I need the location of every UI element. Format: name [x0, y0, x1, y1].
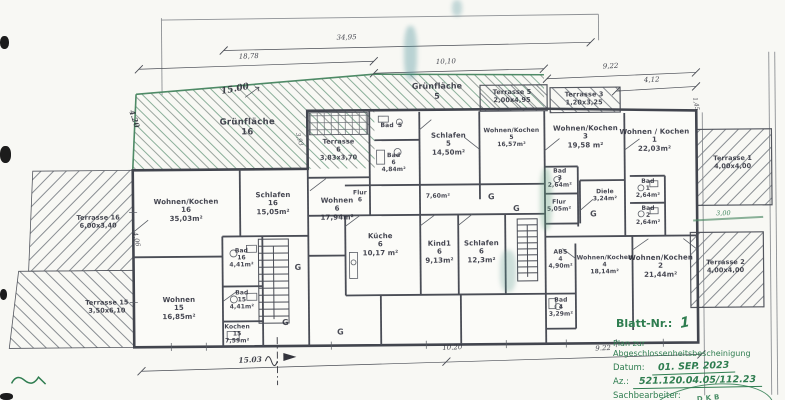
scan-smudge — [540, 168, 552, 230]
room-area: 14,50m² — [417, 148, 481, 157]
room-label-diele: Diele 3,24m² — [581, 188, 629, 203]
room-label-wohnen-kochen-2: Wohnen/Kochen 2 21,44m² — [621, 253, 699, 279]
green-scribble — [12, 377, 46, 384]
floorplan-drawing — [0, 0, 785, 400]
room-area: 16,57m² — [478, 141, 544, 149]
room-name: Bad — [380, 122, 393, 129]
dim-label-9-22-bottom: 9.22 — [595, 344, 611, 353]
area-label-terrasse-3: Terrasse 3 1,20x3,25 — [548, 91, 620, 107]
dim-label-4-12: 4,12 — [644, 75, 660, 84]
room-name: Wohnen/Kochen — [621, 253, 699, 262]
floorplan-area: Grünfläche 16 Grünfläche 5 Terrasse 5 2,… — [0, 0, 785, 400]
dim-label-15-03: 15.03 — [238, 355, 262, 365]
dim-label-10-20: 10.20 — [442, 343, 462, 352]
area-label-terrasse-5: Terrasse 5 2,00x4,95 — [476, 89, 548, 105]
room-label-kochen-15: Kochen 15 7,59m² — [212, 323, 262, 345]
dim-label-total: 34,95 — [336, 33, 356, 42]
room-label-wohnen-15: Wohnen 15 16,85m² — [137, 296, 221, 322]
area-size: 2,00x4,95 — [476, 97, 548, 105]
room-area: 17,94m² — [306, 213, 368, 222]
room-label-bad-15: Bad 15 4,41m² — [222, 289, 262, 311]
closet-mark: G — [282, 318, 289, 327]
titleblock-blatt-nr: Blatt-Nr.:1 — [616, 315, 690, 331]
room-area: 22,03m² — [614, 144, 696, 153]
area-label-gruenflaeche-5: Grünfläche 5 — [397, 81, 477, 101]
room-area: 2,64m² — [629, 192, 667, 200]
scan-smudge — [500, 250, 516, 292]
area-label-gruenflaeche-16: Grünfläche 16 — [199, 117, 295, 138]
stamp-text: DKB — [696, 393, 722, 400]
room-area: 21,44m² — [622, 270, 700, 279]
area-num: 5 — [397, 91, 477, 101]
room-area-flur-6: 7,60m² — [408, 192, 468, 200]
area-label-terrasse-15: Terrasse 15 3,50x6,10 — [71, 299, 143, 315]
dim-label-3-00-green: 3,00 — [716, 209, 731, 217]
room-num: 6 — [347, 196, 373, 203]
room-area: 4,41m² — [222, 304, 262, 312]
room-num: 5 — [398, 122, 402, 129]
room-label-bad-2: Bad 2 2,64m² — [629, 205, 667, 227]
room-label-flur-6: Flur 6 — [347, 189, 373, 204]
closet-mark: G — [337, 327, 344, 336]
room-label-schlafen-16: Schlafen 16 15,05m² — [241, 191, 305, 217]
area-size: 1,20x3,25 — [548, 99, 620, 107]
room-area: 10,17 m² — [352, 249, 408, 258]
blatt-nr-value: 1 — [680, 314, 691, 332]
room-area: 4,41m² — [222, 262, 262, 270]
room-label-kueche-6: Küche 6 10,17 m² — [352, 232, 408, 258]
room-label-bad-16: Bad 16 4,41m² — [221, 247, 261, 269]
room-label-wohnen-kochen-16: Wohnen/Kochen 16 35,03m² — [141, 197, 231, 223]
room-area: 35,03m² — [141, 214, 231, 223]
room-name: Wohnen / Kochen — [613, 127, 695, 136]
scan-artifact — [0, 289, 7, 300]
room-area: 3,29m² — [540, 311, 582, 319]
room-area: 4,84m² — [371, 166, 417, 174]
scan-smudge — [404, 26, 417, 80]
scan-artifact — [0, 393, 13, 400]
area-size: 3,83x3,70 — [309, 154, 369, 162]
room-area: 7,60m² — [408, 192, 468, 200]
dim-label-9-22-top: 9,22 — [603, 62, 619, 71]
area-num: 16 — [199, 127, 295, 138]
dim-label-18-78: 18,78 — [239, 52, 259, 61]
room-label-bad-4: Bad 4 3,29m² — [540, 296, 582, 318]
closet-mark: G — [488, 192, 495, 201]
dim-label-10-10: 10,10 — [436, 57, 456, 66]
area-label-terrasse-16: Terrasse 16 6,00x3,40 — [62, 214, 134, 230]
scan-artifact — [0, 36, 9, 49]
closet-mark: G — [295, 263, 302, 272]
room-label-schlafen-5: Schlafen 5 14,50m² — [416, 131, 480, 157]
scan-smudge — [452, 0, 462, 16]
room-area: 15,05m² — [241, 208, 305, 217]
blatt-nr-label: Blatt-Nr.: — [616, 317, 672, 330]
area-size: 6,00x3,40 — [62, 222, 134, 230]
closet-mark: G — [513, 204, 520, 213]
area-label-terrasse-1: Terrasse 1 4,00x4,00 — [694, 155, 772, 171]
room-area: 2,64m² — [629, 219, 667, 227]
scanned-floorplan-page: Grünfläche 16 Grünfläche 5 Terrasse 5 2,… — [0, 0, 785, 400]
titleblock-datum-label: Datum: — [613, 363, 645, 373]
room-label-wohnen-kochen-1: Wohnen / Kochen 1 22,03m² — [613, 127, 695, 153]
green-dimension-line — [693, 217, 763, 221]
area-label-terrasse-6: Terrasse 6 3,83x3,70 — [308, 138, 368, 162]
room-area: 7,59m² — [212, 338, 262, 346]
scan-artifact — [0, 146, 11, 163]
closet-mark: G — [590, 209, 597, 218]
titleblock-plan-line1: Plan zur — [613, 339, 645, 348]
room-label-bad-6: Bad 6 4,84m² — [371, 152, 417, 174]
area-size: 4,00x4,00 — [694, 163, 772, 171]
room-label-bad-5: Bad 5 — [371, 122, 411, 130]
titleblock-plan-line2: Abgeschlossenheitsbescheinigung — [613, 349, 751, 358]
area-size: 3,50x6,10 — [71, 307, 143, 315]
room-area: 3,24m² — [581, 195, 629, 203]
room-label-bad-1: Bad 1 2,64m² — [629, 178, 667, 200]
room-label-wohnen-kochen-5: Wohnen/Kochen 5 16,57m² — [478, 127, 544, 149]
room-area: 16,85m² — [137, 312, 221, 321]
titleblock-az-label: Az.: — [613, 377, 629, 387]
